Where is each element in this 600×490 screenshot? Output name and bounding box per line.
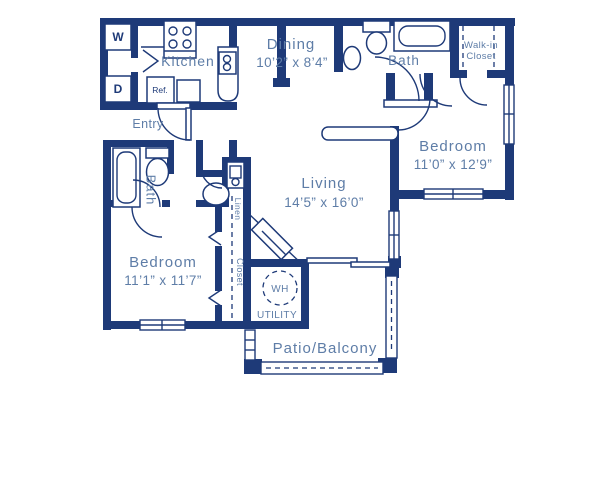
linen-label: Linen (233, 198, 243, 221)
sliding-patio-door (307, 258, 390, 267)
kitchen-sink (219, 52, 236, 74)
window-bedroom-right (424, 189, 483, 199)
utility-label: UTILITY (257, 310, 297, 321)
bedroom-left-label: Bedroom (129, 254, 197, 271)
window-bedroom-left (140, 320, 185, 330)
dryer-label: D (114, 82, 123, 96)
floor-plan: Kitchen Entry Dining 10’2” x 8’4” Bath W… (0, 0, 600, 490)
closet-bifold-door-bottom (209, 290, 221, 306)
water-heater-label: WH (271, 284, 288, 295)
entry-door-leaf (186, 108, 191, 140)
windows (140, 85, 514, 360)
bath-top-sink (344, 47, 361, 70)
window-utility-side (245, 330, 255, 360)
bedroom-right-dims: 11’0” x 12’9” (414, 157, 493, 172)
bath-top-label: Bath (388, 53, 420, 68)
bedroom-right-door-leaf (322, 127, 398, 140)
walk-in-closet-label-line1: Walk-in (464, 40, 498, 51)
fireplace (249, 214, 304, 266)
walk-in-closet-door-arc (460, 78, 487, 105)
bedroom-left-door-arc (132, 207, 162, 237)
entry-label: Entry (132, 117, 164, 131)
walk-in-closet-label-line2: Closet (466, 51, 495, 62)
washer-label: W (112, 30, 124, 44)
furnace-unit (227, 162, 244, 188)
bath-left-tub (113, 148, 140, 207)
entry-threshold (157, 103, 190, 109)
bath-left-sink (203, 183, 229, 205)
living-dims: 14’5” x 16’0” (284, 195, 364, 210)
counter-cabinet (177, 80, 200, 102)
bedroom-closet-label: Closet (235, 258, 245, 286)
dining-dims: 10’2” x 8’4” (256, 55, 328, 70)
floor-plan-svg: Kitchen Entry Dining 10’2” x 8’4” Bath W… (0, 0, 600, 490)
kitchen-label: Kitchen (161, 53, 215, 69)
bedroom-right-label: Bedroom (419, 138, 487, 155)
refrigerator-label: Ref. (152, 85, 168, 95)
window-right-wall (504, 85, 514, 144)
bath-top-toilet (363, 21, 390, 54)
bedroom-left-dims: 11’1” x 11’7” (124, 273, 202, 288)
patio-label: Patio/Balcony (273, 340, 378, 357)
dining-label: Dining (267, 36, 316, 53)
bath-left-label: Bath (144, 175, 159, 206)
living-label: Living (301, 175, 346, 192)
window-living-east (389, 211, 399, 259)
kitchen-angled-wall (143, 50, 158, 72)
bath-top-tub (394, 21, 450, 51)
